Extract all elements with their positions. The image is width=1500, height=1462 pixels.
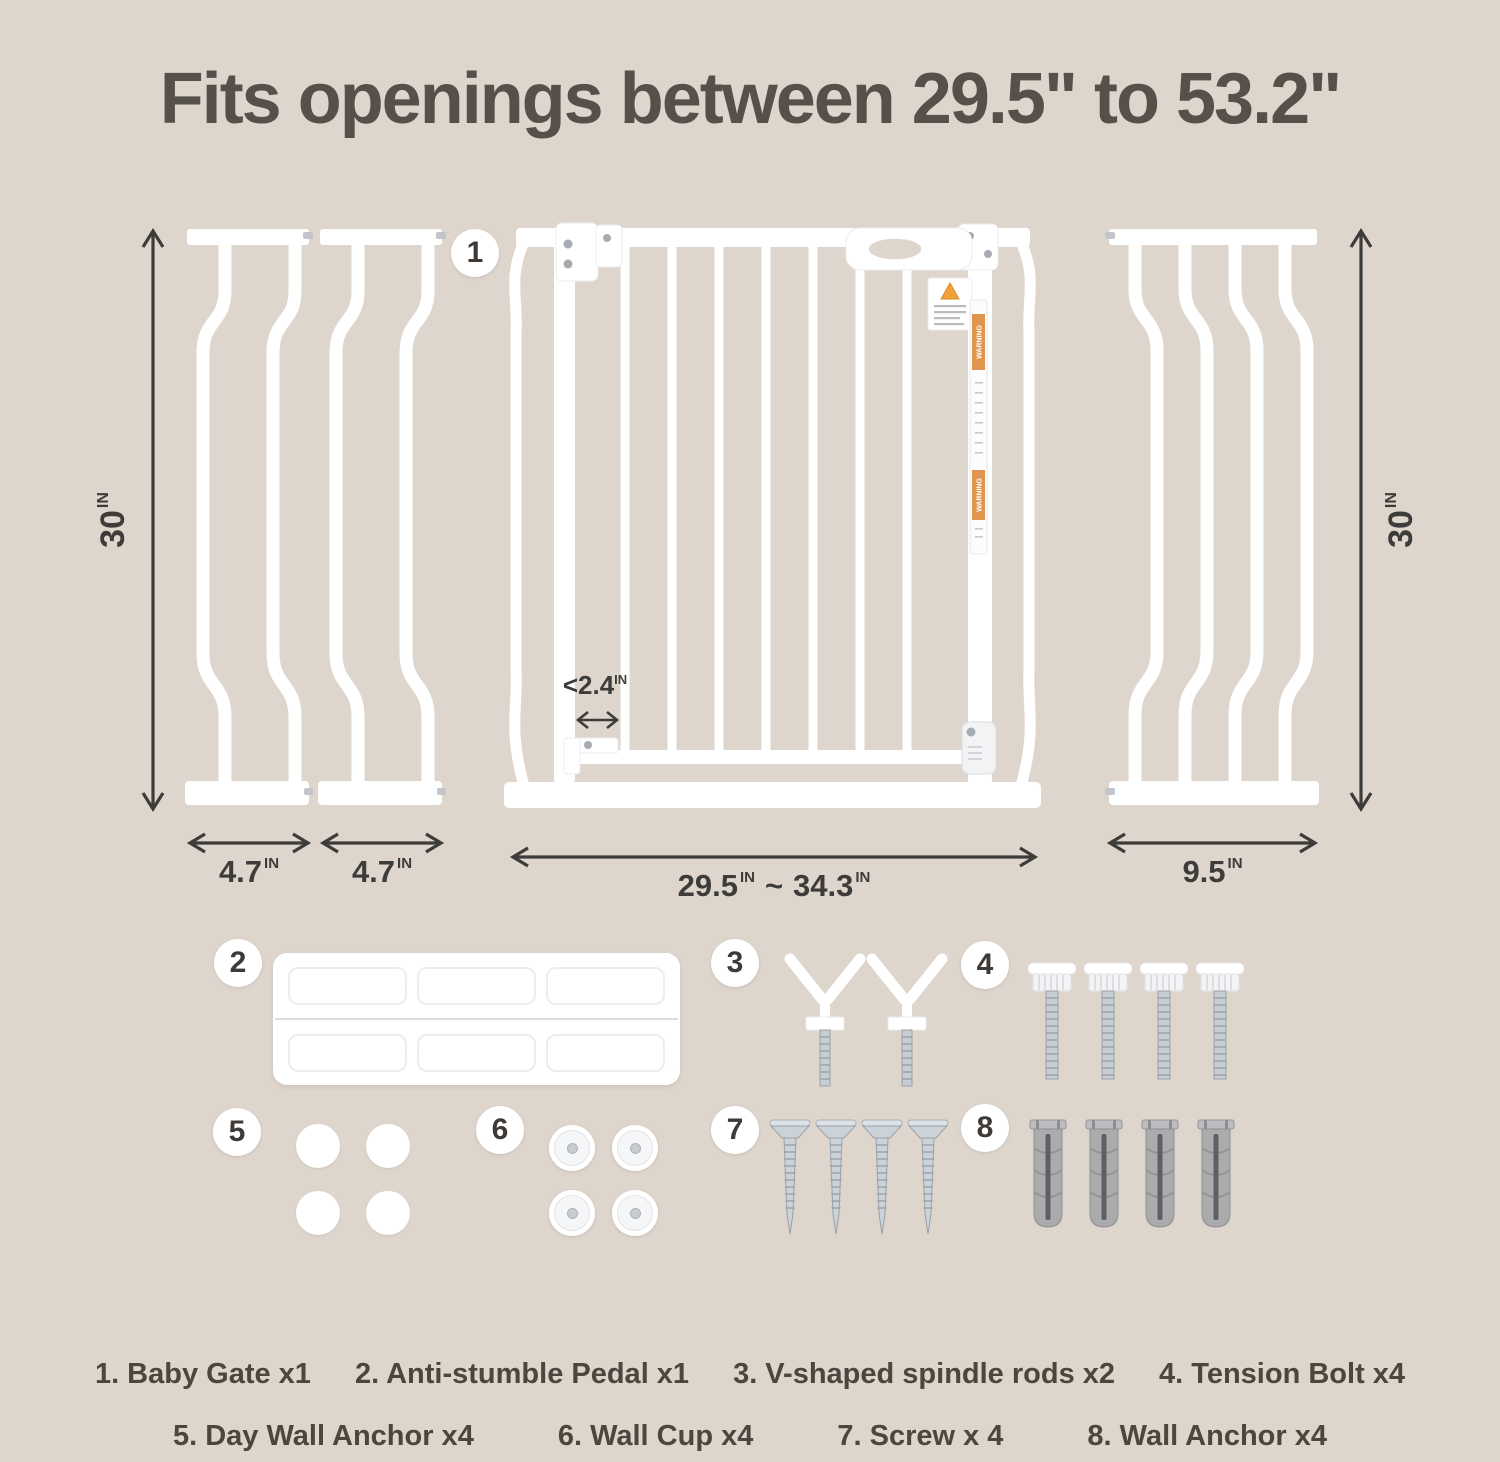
tension-bolt (1026, 961, 1078, 1083)
extension-top-rail (1109, 229, 1317, 245)
pedal-top-face (273, 953, 680, 1018)
wall-cup (549, 1125, 595, 1171)
width-label-ext-b: 4.7IN (318, 856, 446, 887)
product-infographic: Fits openings between 29.5" to 53.2" 30I… (0, 0, 1500, 1462)
day-wall-anchor (366, 1124, 410, 1168)
wall-anchor (1078, 1118, 1130, 1238)
screw (768, 1118, 812, 1242)
extension-base (1109, 781, 1319, 805)
baby-gate-graphic: WARNING WARNING (500, 222, 1045, 818)
height-label-right: 30IN (1384, 450, 1428, 590)
day-wall-anchor (296, 1191, 340, 1235)
wall-anchor (1022, 1118, 1074, 1238)
gate-frame-post-left (515, 242, 524, 786)
legend-item: 1. Baby Gate x1 (95, 1358, 311, 1391)
gate-door-bars (621, 240, 912, 760)
svg-text:<2.4IN: <2.4IN (563, 670, 627, 700)
wall-cup (612, 1190, 658, 1236)
legend-item: 8. Wall Anchor x4 (1087, 1420, 1327, 1453)
warning-strip-text: WARNING (977, 478, 984, 512)
width-label-ext-a: 4.7IN (185, 856, 313, 887)
height-arrow-left-icon (138, 226, 168, 814)
part-badge-tension-bolt: 4 (961, 941, 1009, 989)
gate-top-hinge (556, 223, 622, 281)
extension-top-rail (320, 229, 442, 245)
extension-panel-right (1105, 225, 1320, 817)
day-wall-anchor (366, 1191, 410, 1235)
gate-handle (846, 224, 998, 270)
height-label-left: 30IN (96, 450, 140, 590)
legend-item: 4. Tension Bolt x4 (1159, 1358, 1405, 1391)
warning-strip: WARNING WARNING (970, 300, 987, 554)
day-wall-anchor (296, 1124, 340, 1168)
wall-cup (612, 1125, 658, 1171)
extension-top-rail (187, 229, 309, 245)
warning-tag (928, 278, 972, 330)
v-shaped-spindle-rod (862, 953, 952, 1093)
tension-bolt (1138, 961, 1190, 1083)
extension-panel-left-b (318, 225, 446, 817)
screw (860, 1118, 904, 1242)
extension-panel-left-a (185, 225, 313, 817)
legend-item: 2. Anti-stumble Pedal x1 (355, 1358, 689, 1391)
part-badge-screw: 7 (711, 1106, 759, 1154)
legend-row-2: 5. Day Wall Anchor x4 6. Wall Cup x4 7. … (0, 1420, 1500, 1453)
screw (906, 1118, 950, 1242)
legend-row-1: 1. Baby Gate x1 2. Anti-stumble Pedal x1… (0, 1358, 1500, 1391)
gate-frame-post-right (1021, 242, 1030, 786)
width-label-gate: 29.5IN ~ 34.3IN (508, 870, 1040, 901)
width-label-ext-right: 9.5IN (1105, 856, 1320, 887)
pedal-bottom-face (273, 1020, 680, 1085)
wall-anchor (1134, 1118, 1186, 1238)
height-arrow-right-icon (1346, 226, 1376, 814)
anti-stumble-pedal (273, 953, 680, 1085)
legend-item: 5. Day Wall Anchor x4 (173, 1420, 474, 1453)
v-shaped-spindle-rod (780, 953, 870, 1093)
part-badge-wall-anchor: 8 (961, 1104, 1009, 1152)
part-badge-wall-cup: 6 (476, 1106, 524, 1154)
screw (814, 1118, 858, 1242)
wall-anchor (1190, 1118, 1242, 1238)
tension-bolt (1082, 961, 1134, 1083)
gate-latch (962, 722, 996, 774)
legend-item: 3. V-shaped spindle rods x2 (733, 1358, 1115, 1391)
legend-item: 6. Wall Cup x4 (558, 1420, 754, 1453)
gate-base-bar (504, 782, 1041, 808)
warning-strip-text: WARNING (977, 325, 984, 359)
page-title: Fits openings between 29.5" to 53.2" (0, 58, 1500, 140)
legend-item: 7. Screw x 4 (837, 1420, 1003, 1453)
part-badge-spindle-rods: 3 (711, 939, 759, 987)
part-badge-day-wall-anchor: 5 (213, 1108, 261, 1156)
extension-base (318, 781, 442, 805)
gate-door-bottom-rail (566, 750, 976, 764)
part-badge-baby-gate: 1 (451, 229, 499, 277)
wall-cup (549, 1190, 595, 1236)
part-badge-pedal: 2 (214, 939, 262, 987)
extension-base (185, 781, 309, 805)
tension-bolt (1194, 961, 1246, 1083)
